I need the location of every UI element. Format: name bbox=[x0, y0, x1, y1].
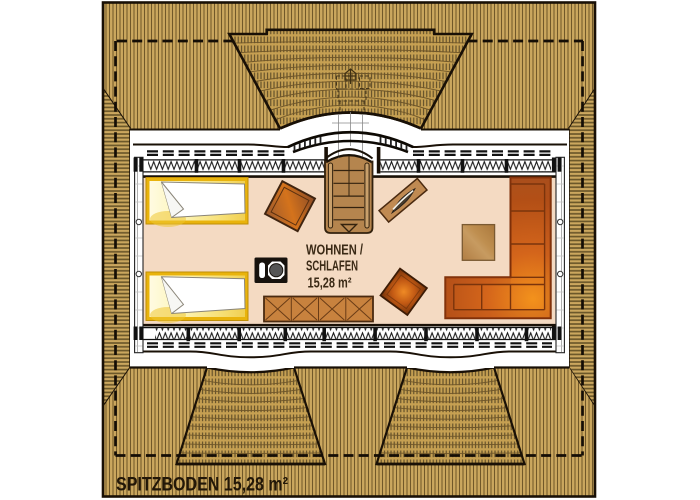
svg-text:15,28 m²: 15,28 m² bbox=[308, 275, 352, 291]
svg-text:SPITZBODEN 15,28 m²: SPITZBODEN 15,28 m² bbox=[116, 474, 288, 496]
svg-text:WOHNEN /: WOHNEN / bbox=[306, 242, 363, 258]
svg-text:SCHLAFEN: SCHLAFEN bbox=[306, 259, 358, 275]
